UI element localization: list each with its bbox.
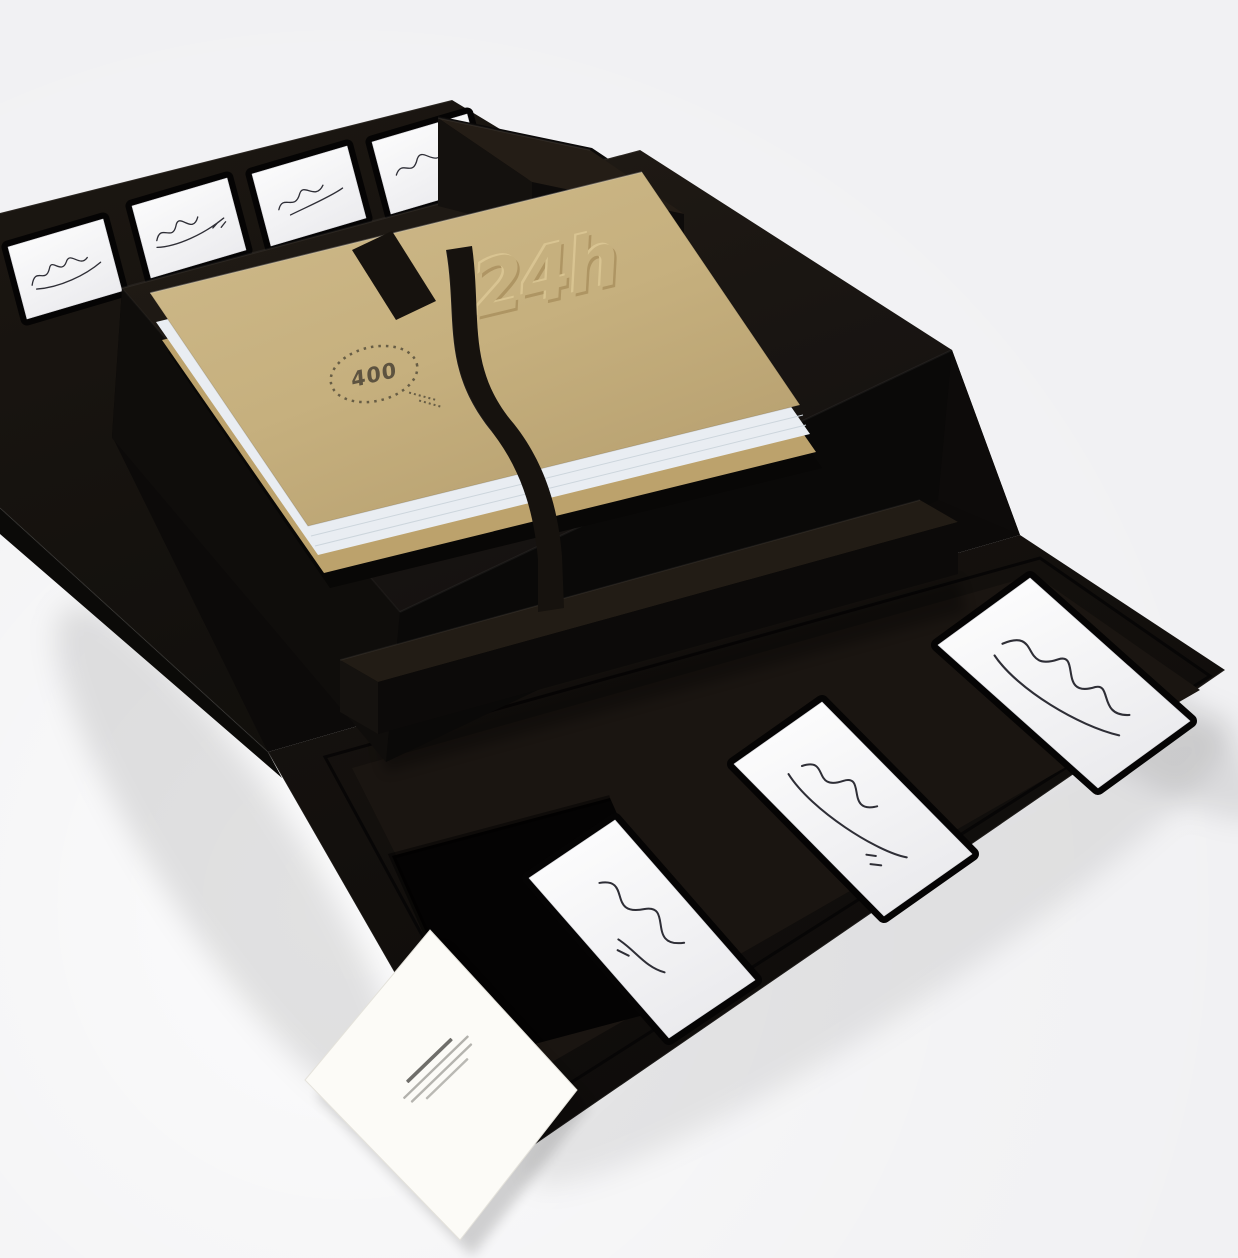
product-photo-stage: 24h 24h 24h 400: [0, 0, 1238, 1258]
box-set-render: 24h 24h 24h 400: [0, 0, 1238, 1258]
